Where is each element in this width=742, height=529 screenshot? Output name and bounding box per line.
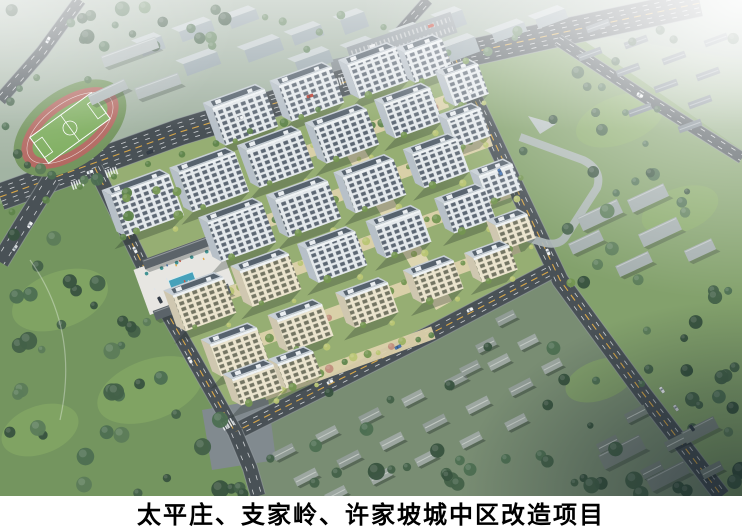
fog-overlay: [0, 0, 742, 496]
caption-bar: 太平庄、支家岭、许家坡城中区改造项目: [0, 496, 742, 529]
project-title: 太平庄、支家岭、许家坡城中区改造项目: [137, 495, 605, 529]
aerial-rendering-image: [0, 0, 742, 496]
screenshot-root: 太平庄、支家岭、许家坡城中区改造项目: [0, 0, 742, 529]
